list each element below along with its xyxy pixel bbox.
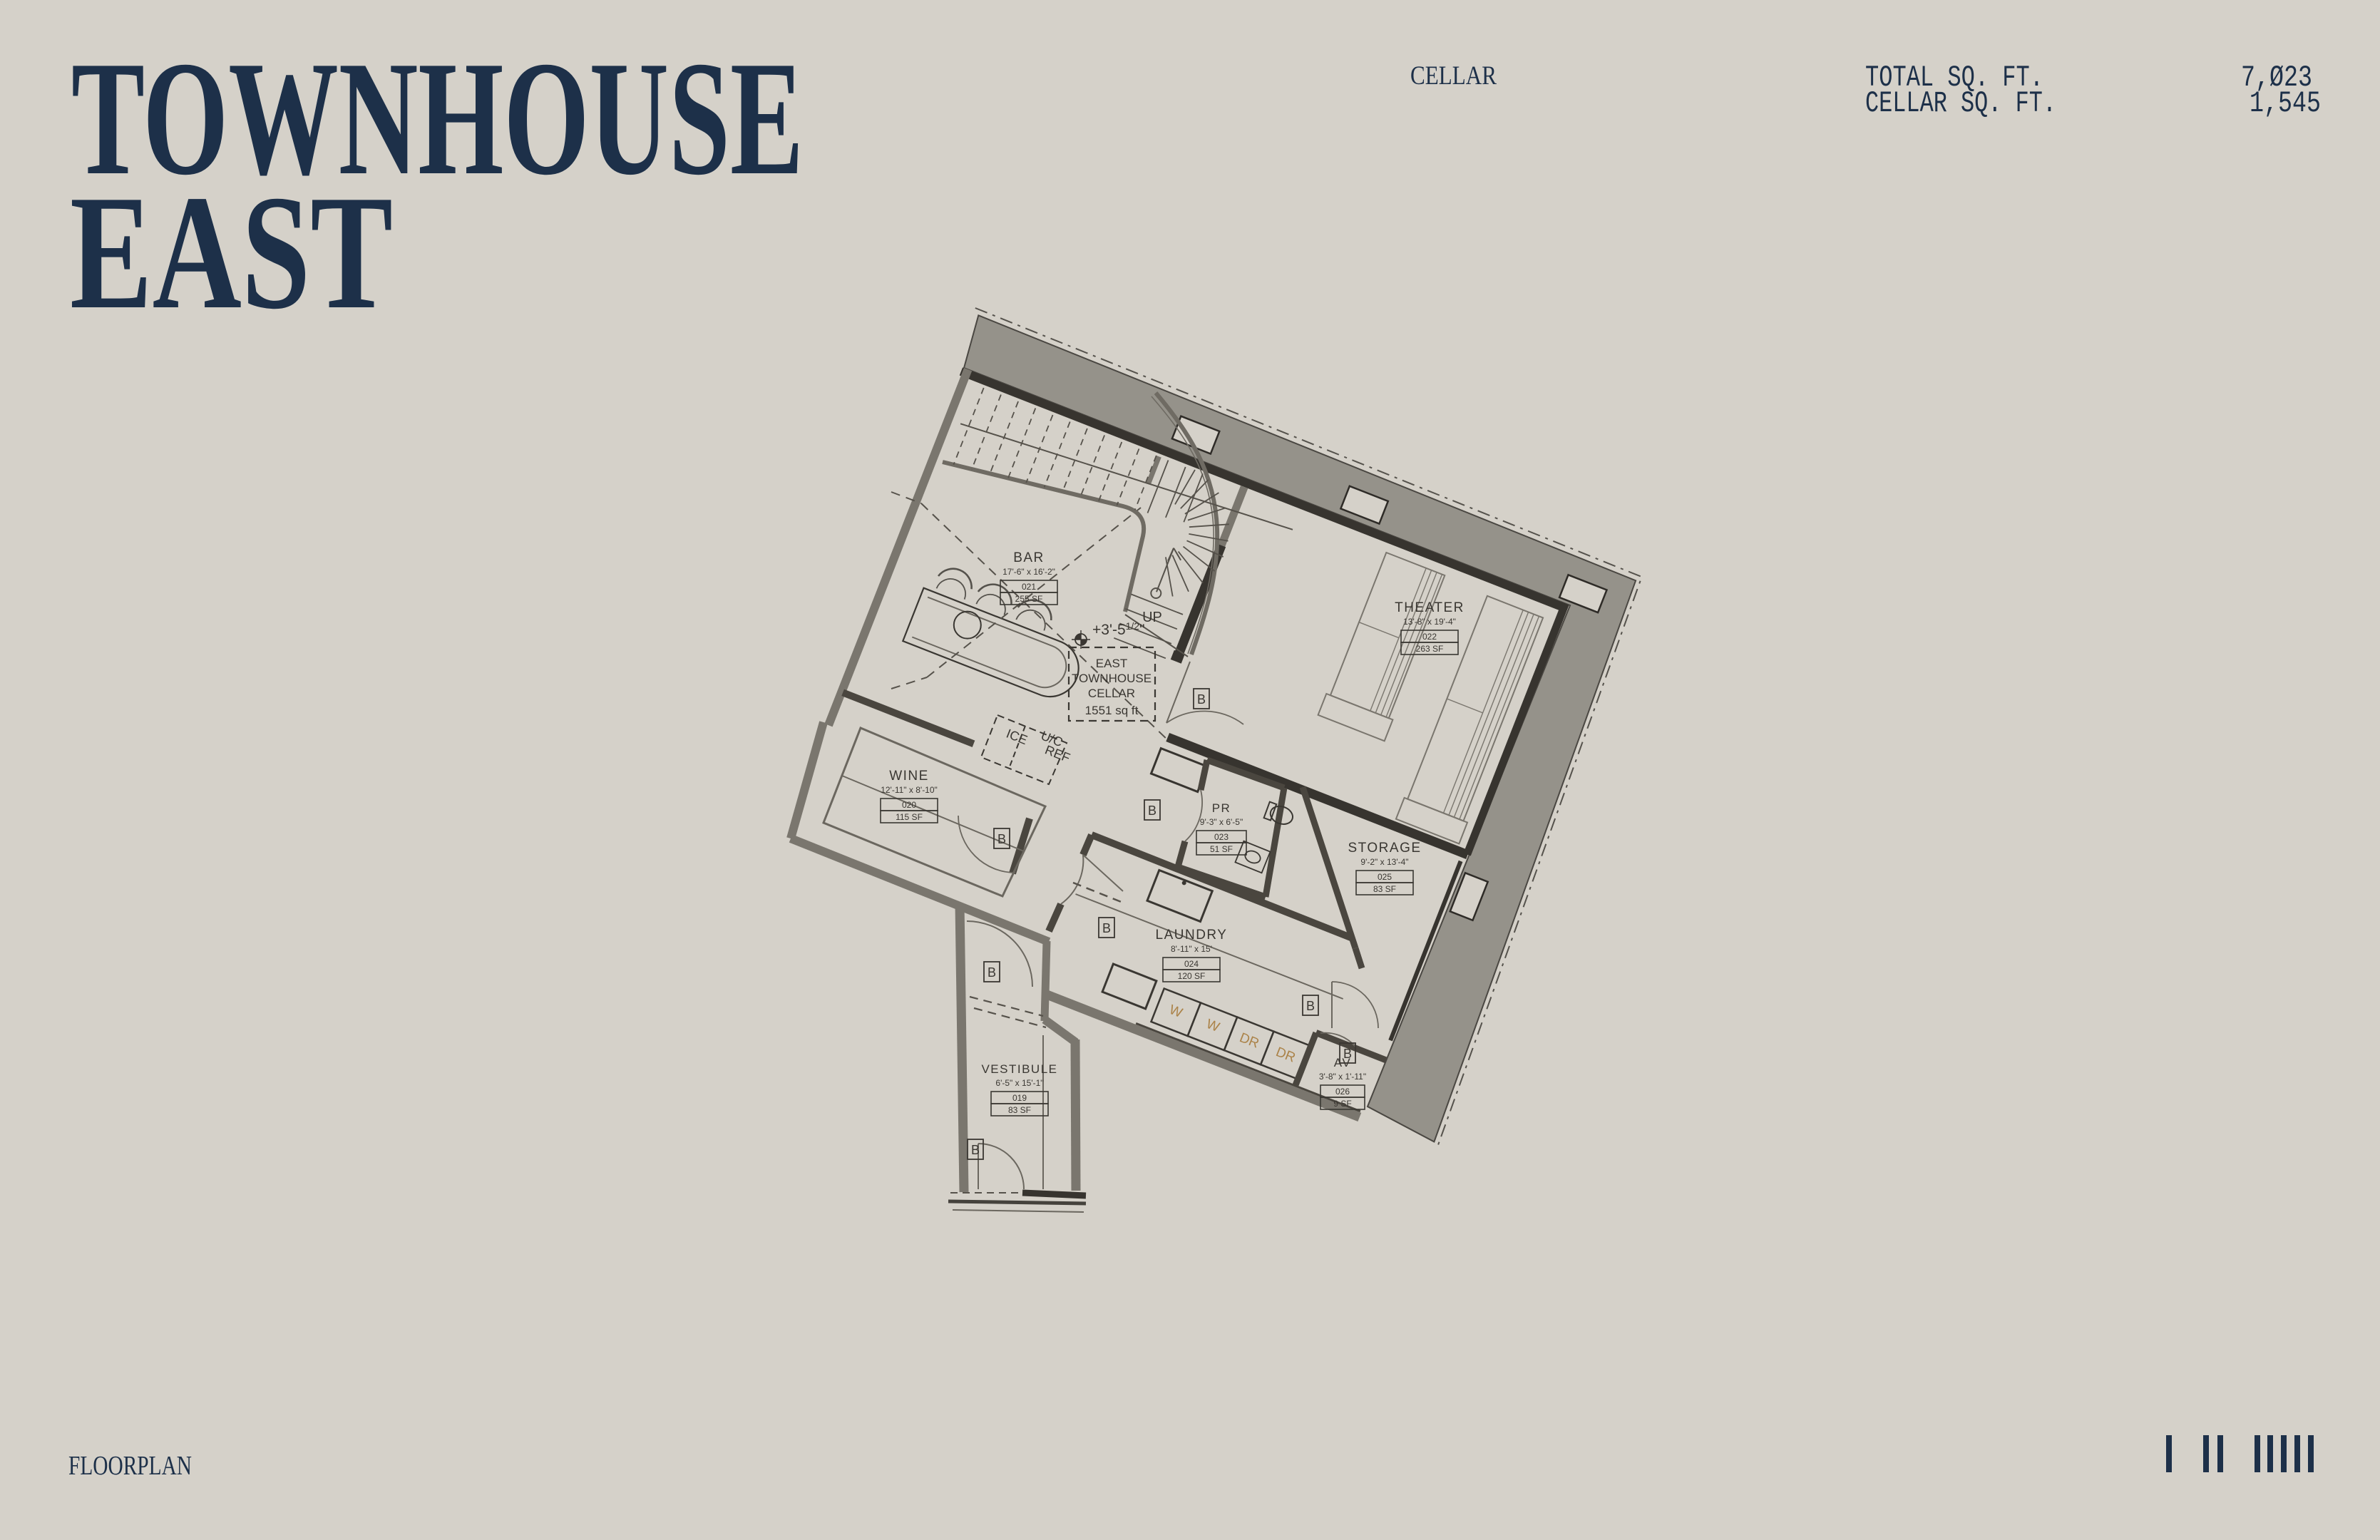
svg-text:13'-8" x 19'-4": 13'-8" x 19'-4" [1403,617,1456,627]
svg-text:BAR: BAR [1013,550,1045,565]
svg-text:17'-6" x 16'-2": 17'-6" x 16'-2" [1002,567,1055,577]
svg-text:TOWNHOUSE: TOWNHOUSE [1072,672,1151,685]
svg-text:UP: UP [1142,610,1162,625]
svg-text:B: B [988,965,996,980]
svg-text:115 SF: 115 SF [896,812,923,822]
svg-text:1551 sq ft: 1551 sq ft [1085,704,1139,717]
svg-text:120 SF: 120 SF [1178,971,1206,981]
svg-text:THEATER: THEATER [1395,600,1465,615]
svg-text:LAUNDRY: LAUNDRY [1156,928,1228,943]
svg-text:CELLAR: CELLAR [1088,687,1135,700]
svg-text:B: B [1343,1047,1352,1061]
svg-text:024: 024 [1184,959,1199,969]
svg-text:020: 020 [902,800,916,810]
svg-text:3'-8" x 1'-11": 3'-8" x 1'-11" [1319,1072,1366,1082]
svg-text:83 SF: 83 SF [1373,884,1396,894]
svg-text:CELLAR SQ. FT.: CELLAR SQ. FT. [1865,86,2056,120]
svg-text:9'-3" x 6'-5": 9'-3" x 6'-5" [1200,817,1243,827]
svg-text:STORAGE: STORAGE [1348,841,1421,856]
svg-text:B: B [1306,999,1315,1013]
svg-text:9'-2" x 13'-4": 9'-2" x 13'-4" [1360,857,1408,867]
svg-text:022: 022 [1422,632,1437,642]
svg-text:9 SF: 9 SF [1333,1099,1351,1109]
svg-text:51 SF: 51 SF [1210,844,1233,854]
svg-text:FLOORPLAN: FLOORPLAN [68,1451,192,1481]
svg-text:019: 019 [1012,1093,1027,1103]
svg-text:B: B [1102,921,1111,935]
svg-text:021: 021 [1022,582,1036,592]
svg-text:B: B [971,1143,980,1157]
svg-text:83 SF: 83 SF [1008,1105,1031,1115]
svg-text:PR: PR [1212,801,1231,815]
svg-text:CELLAR: CELLAR [1410,61,1497,91]
svg-text:8'-11" x 15': 8'-11" x 15' [1171,944,1212,954]
svg-text:VESTIBULE: VESTIBULE [981,1062,1057,1076]
svg-text:255 SF: 255 SF [1015,594,1043,604]
svg-text:EAST: EAST [70,161,393,343]
svg-text:12'-11" x 8'-10": 12'-11" x 8'-10" [881,785,938,795]
svg-text:1,545: 1,545 [2250,86,2321,120]
svg-text:B: B [1197,692,1206,707]
svg-text:263 SF: 263 SF [1416,644,1444,654]
svg-text:026: 026 [1335,1087,1350,1097]
svg-text:B: B [997,832,1006,846]
svg-text:023: 023 [1214,832,1229,842]
svg-text:EAST: EAST [1096,657,1127,670]
svg-text:6'-5" x 15'-1": 6'-5" x 15'-1" [995,1078,1043,1088]
svg-text:B: B [1148,804,1156,818]
svg-text:WINE: WINE [889,769,929,784]
svg-text:025: 025 [1378,872,1392,882]
